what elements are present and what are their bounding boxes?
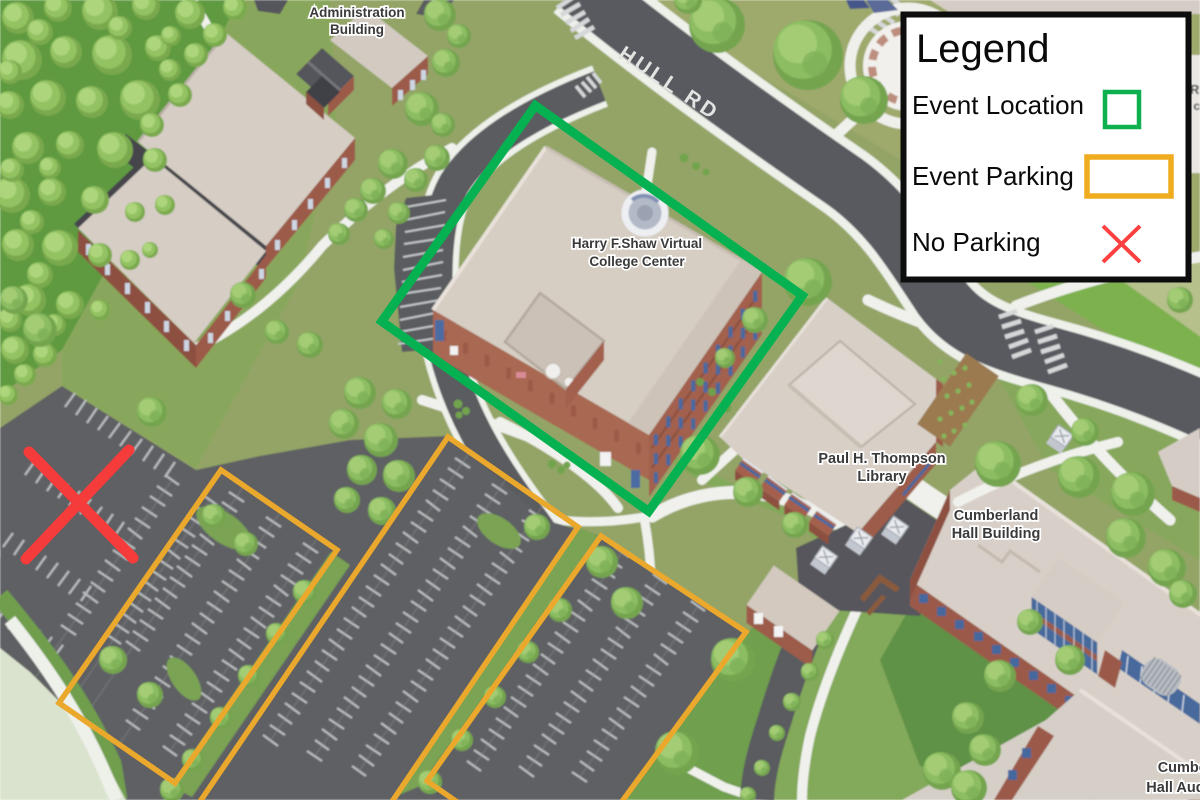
svg-text:Paul H. Thompson: Paul H. Thompson xyxy=(818,451,945,467)
svg-text:No Parking: No Parking xyxy=(912,227,1041,257)
svg-text:College Center: College Center xyxy=(589,254,685,269)
svg-text:Cumberland: Cumberland xyxy=(954,508,1039,524)
svg-text:Building: Building xyxy=(330,22,384,37)
svg-text:Administration: Administration xyxy=(309,5,404,20)
svg-text:Hall Building: Hall Building xyxy=(952,526,1041,542)
svg-text:Event Parking: Event Parking xyxy=(912,161,1074,191)
svg-text:Harry F.Shaw Virtual: Harry F.Shaw Virtual xyxy=(572,236,702,251)
svg-text:Event Location: Event Location xyxy=(912,90,1084,120)
svg-text:Hall Auditorium: Hall Auditorium xyxy=(1146,780,1200,796)
svg-text:Legend: Legend xyxy=(916,27,1049,71)
svg-text:Cumberland: Cumberland xyxy=(1158,760,1200,776)
svg-text:Library: Library xyxy=(857,469,906,485)
